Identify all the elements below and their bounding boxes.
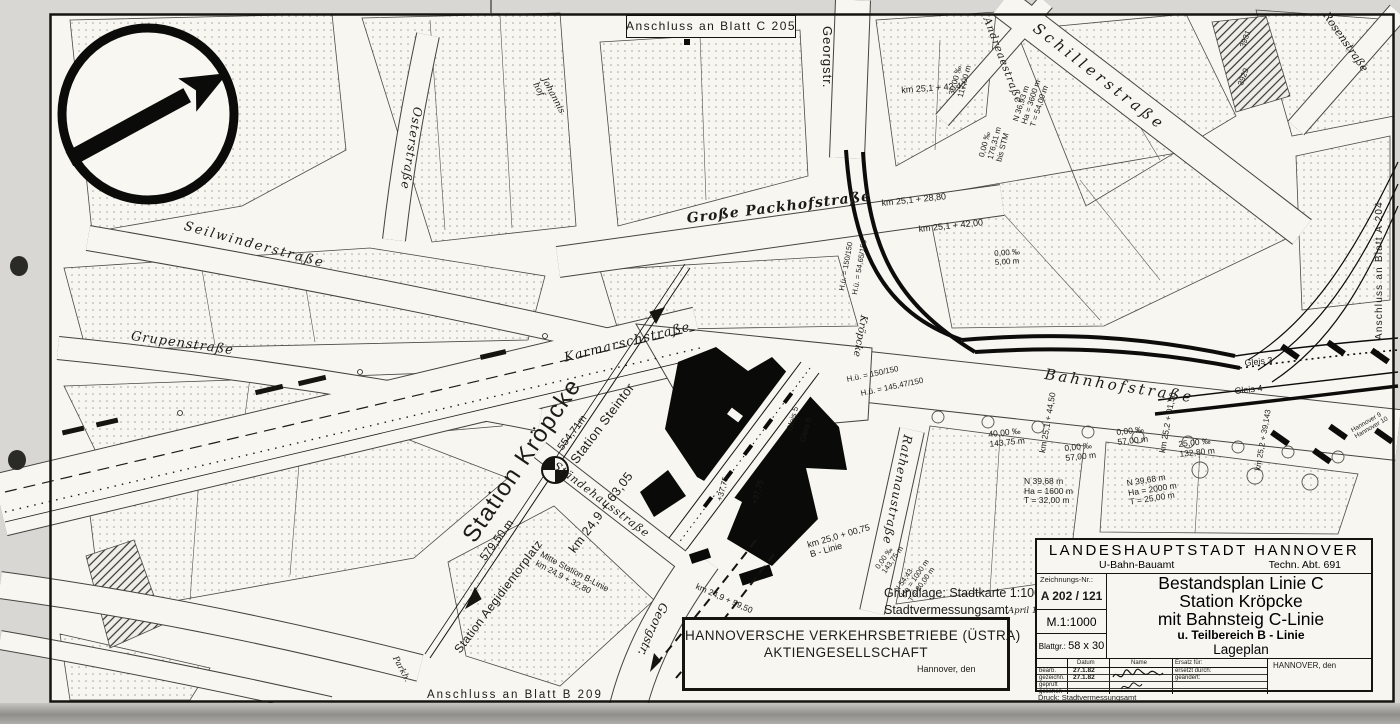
sheet-size-label: Blattgr.: (1039, 642, 1066, 651)
col-name: Name (1131, 660, 1147, 667)
ersetzt-durch-label: ersetzt durch: (1175, 668, 1211, 675)
revision-table: Datum Name Ersatz für: bearb. 27.1.82 ge… (1037, 658, 1371, 694)
drawing-no-label: Zeichnungs-Nr.: (1040, 576, 1093, 584)
company-box: HANNOVERSCHE VERKEHRSBETRIEBE (ÜSTRA) AK… (682, 617, 1010, 691)
title-block-header: LANDESHAUPTSTADT HANNOVER U-Bahn-Bauamt … (1037, 540, 1371, 574)
row-gezeichn-label: gezeichn. (1039, 675, 1065, 682)
signature-icon (1111, 667, 1169, 693)
scale-value: M.1:1000 (1037, 610, 1106, 634)
gradient-note-3a: 0,00 ‰57,00 m (1064, 441, 1097, 463)
office-name: U-Bahn-Bauamt (1099, 559, 1174, 571)
drawing-title-line3: mit Bahnsteig C-Linie (1107, 610, 1375, 629)
authority-name: LANDESHAUPTSTADT HANNOVER (1037, 542, 1371, 559)
curve-note-2: N 39,68 mHa = 1600 mT = 32,00 m (1024, 477, 1073, 506)
street-georgstr-top: Georgstr. (819, 26, 834, 88)
north-arrow-icon (60, 28, 236, 200)
row-bearb-label: bearb. (1039, 668, 1056, 675)
title-block: LANDESHAUPTSTADT HANNOVER U-Bahn-Bauamt … (1035, 538, 1373, 692)
gradient-note-4: 40,00 ‰143,75 m (988, 426, 1025, 449)
company-name-line2: AKTIENGESELLSCHAFT (685, 645, 1007, 660)
scan-shadow (0, 703, 1400, 724)
company-date-line: Hannover, den (917, 664, 976, 674)
titleblock-city: HANNOVER, den (1273, 662, 1336, 671)
connection-bottom-label: Anschluss an Blatt B 209 (427, 689, 603, 702)
row-gezeichn-date: 27.1.82 (1073, 674, 1095, 681)
drawing-no-value: A 202 / 121 (1037, 590, 1106, 603)
source-note-line1: Grundlage: Stadtkarte 1:1000 (884, 586, 1048, 600)
source-note-line2: Stadtvermessungsamt (884, 603, 1008, 617)
gradient-note-7: 0,00 ‰5,00 m (994, 248, 1021, 268)
gradient-note-6: 25,00 ‰132,80 m (1178, 436, 1215, 459)
department-name: Techn. Abt. 691 (1269, 559, 1341, 571)
drawing-title-line5: Lageplan (1107, 642, 1375, 657)
drawing-title-line1: Bestandsplan Linie C (1107, 574, 1375, 592)
connection-note-top: Anschluss an Blatt C 205 (626, 15, 796, 38)
col-datum: Datum (1077, 660, 1095, 667)
scanned-site-plan: { "connections": { "top": "Anschluss an … (0, 0, 1400, 724)
col-ersatz: Ersatz für: (1175, 660, 1202, 667)
gradient-note-3b: 0,00 ‰57,00 m (1116, 425, 1149, 447)
connection-right-label: Anschluss an Blatt A 204 (1374, 201, 1385, 340)
geaendert-label: geändert: (1175, 675, 1200, 682)
hole-punches (8, 256, 28, 470)
drawing-title: Bestandsplan Linie C Station Kröpcke mit… (1107, 574, 1375, 658)
company-name-line1: HANNOVERSCHE VERKEHRSBETRIEBE (ÜSTRA) (685, 628, 1007, 643)
drawing-title-line4: u. Teilbereich B - Linie (1107, 629, 1375, 642)
print-note: Druck: Stadtvermessungsamt (1038, 694, 1136, 702)
sheet-size-value: 58 x 30 (1068, 640, 1104, 652)
title-block-left-column: Zeichnungs-Nr.: A 202 / 121 M.1:1000 Bla… (1037, 574, 1107, 658)
row-geprueft-label: geprüft (1039, 682, 1058, 689)
drawing-title-line2: Station Kröpcke (1107, 592, 1375, 610)
connection-top-label: Anschluss an Blatt C 205 (626, 20, 796, 33)
